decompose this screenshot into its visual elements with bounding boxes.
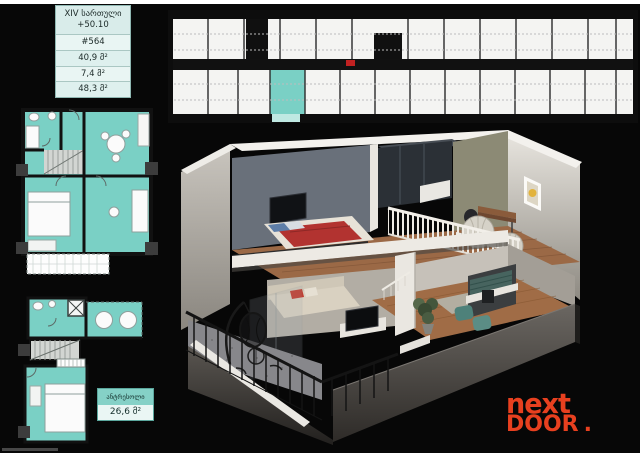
floor-row: XIV სართული +50.10 bbox=[56, 6, 130, 35]
unit-number-row: #564 bbox=[56, 35, 130, 51]
area-total-row: 48,3 მ² bbox=[56, 82, 130, 97]
area-balcony: 7,4 მ² bbox=[81, 69, 105, 80]
unit-number: #564 bbox=[81, 37, 104, 48]
floor-label: XIV სართული bbox=[64, 9, 121, 20]
highlighted-unit bbox=[270, 70, 305, 114]
stair-core-right bbox=[374, 33, 402, 59]
mezzanine-plan-bedroom bbox=[14, 356, 98, 448]
corridor-marker bbox=[346, 60, 355, 66]
elevation-label: +50.10 bbox=[77, 20, 108, 31]
plan-balcony bbox=[27, 254, 109, 274]
structural-column bbox=[18, 426, 30, 438]
bedroom-tv bbox=[270, 193, 306, 224]
area-apartment: 40,9 მ² bbox=[78, 53, 107, 64]
nextdoor-logo: next DOOR. bbox=[506, 394, 596, 446]
area-apartment-row: 40,9 მ² bbox=[56, 51, 130, 67]
mezzanine-label-box: ანტრესოლი 26,6 მ² bbox=[97, 388, 154, 421]
mezzanine-area: 26,6 მ² bbox=[98, 405, 153, 421]
wall-notch bbox=[400, 335, 430, 354]
building-overview-plan bbox=[168, 6, 638, 125]
stairs bbox=[44, 150, 84, 174]
area-total: 48,3 მ² bbox=[78, 84, 107, 95]
corridor bbox=[173, 59, 633, 70]
stair-core-left bbox=[246, 19, 268, 59]
apartment-plan bbox=[14, 104, 160, 276]
unit-info-box: XIV სართული +50.10 #564 40,9 მ² 7,4 მ² 4… bbox=[55, 5, 131, 98]
flyer-page: XIV სართული +50.10 #564 40,9 მ² 7,4 მ² 4… bbox=[0, 0, 640, 453]
divider-wall bbox=[395, 252, 415, 336]
left-wall bbox=[181, 146, 230, 330]
logo-word-next: next bbox=[506, 394, 596, 417]
area-balcony-row: 7,4 მ² bbox=[56, 67, 130, 83]
mezzanine-title: ანტრესოლი bbox=[98, 389, 153, 405]
oven bbox=[482, 290, 494, 303]
watermark bbox=[2, 448, 58, 451]
mezzanine-plan-upper bbox=[16, 294, 148, 364]
mezz-bathroom-block bbox=[378, 139, 464, 208]
mezz-rail-hatch bbox=[57, 359, 85, 367]
structural-column bbox=[18, 344, 30, 356]
highlighted-unit-balcony bbox=[272, 114, 300, 122]
